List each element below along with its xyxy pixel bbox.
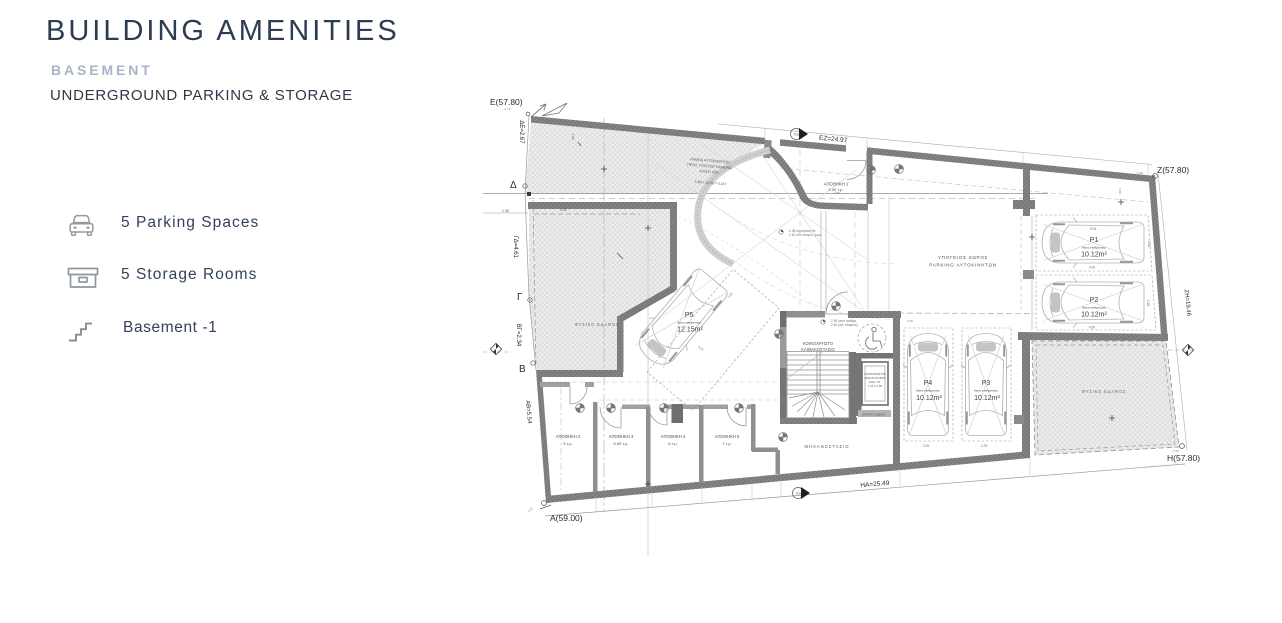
svg-text:θεση σταθμευσης: θεση σταθμευσης bbox=[916, 389, 940, 393]
svg-text:ΚΛΙΜΑΚΟΣΤΑΣΙΟ: ΚΛΙΜΑΚΟΣΤΑΣΙΟ bbox=[801, 347, 835, 352]
svg-text:θεση σταθμευσης: θεση σταθμευσης bbox=[974, 389, 998, 393]
svg-text:ΤΟΜ: ΤΟΜ bbox=[794, 133, 801, 137]
svg-text:10.12m²: 10.12m² bbox=[1081, 312, 1107, 319]
svg-text:P3: P3 bbox=[982, 380, 991, 387]
svg-text:P1: P1 bbox=[1090, 237, 1099, 244]
svg-text:ΚΑΘ. ΥΨ.: ΚΑΘ. ΥΨ. bbox=[869, 380, 881, 384]
svg-text:4.50: 4.50 bbox=[1089, 326, 1096, 330]
svg-text:2.25: 2.25 bbox=[923, 444, 930, 448]
svg-text:12.15m²: 12.15m² bbox=[677, 327, 703, 334]
svg-text:10.12m²: 10.12m² bbox=[916, 395, 942, 402]
svg-text:6.50 τ.μ.: 6.50 τ.μ. bbox=[613, 441, 628, 446]
svg-text:ΕΖ=24.97: ΕΖ=24.97 bbox=[819, 135, 848, 145]
svg-text:2.25: 2.25 bbox=[981, 444, 988, 448]
svg-text:Z(57.80): Z(57.80) bbox=[1157, 165, 1189, 175]
svg-text:ΥΠΟΓΕΙΟΣ ΧΩΡΟΣ: ΥΠΟΓΕΙΟΣ ΧΩΡΟΣ bbox=[938, 255, 988, 260]
svg-text:-2.60 γειτ. εδαφους): -2.60 γειτ. εδαφους) bbox=[830, 323, 858, 327]
svg-text:-1.70: -1.70 bbox=[504, 107, 511, 111]
svg-text:ΚΟΙΝΟΧΡΗΣΤΟΣ: ΚΟΙΝΟΧΡΗΣΤΟΣ bbox=[864, 372, 885, 376]
svg-text:E(57.80): E(57.80) bbox=[490, 97, 523, 107]
svg-text:5.05: 5.05 bbox=[1090, 227, 1097, 231]
svg-text:3.00: 3.00 bbox=[560, 208, 567, 212]
svg-text:ΑΠΟΘΗΚΗ 3: ΑΠΟΘΗΚΗ 3 bbox=[609, 434, 634, 439]
svg-text:ΜΗΧΑΝΟΣΤΑΣΙΟ: ΜΗΧΑΝΟΣΤΑΣΙΟ bbox=[804, 444, 849, 449]
svg-text:2.15: 2.15 bbox=[907, 319, 913, 323]
svg-text:10.12m²: 10.12m² bbox=[1081, 252, 1107, 259]
svg-text:4.50: 4.50 bbox=[1089, 266, 1096, 270]
svg-text:ΑΠΟΘΗΚΗ 1: ΑΠΟΘΗΚΗ 1 bbox=[824, 182, 849, 187]
svg-text:7 τ.μ.: 7 τ.μ. bbox=[722, 441, 731, 446]
svg-text:ΦΥΣΙΚΟ ΕΔΑΦΟΣ: ΦΥΣΙΚΟ ΕΔΑΦΟΣ bbox=[1082, 389, 1127, 394]
svg-text:ΦΡΕΑΤΙΟ ΛΕΒΗΤΑ: ΦΡΕΑΤΙΟ ΛΕΒΗΤΑ bbox=[863, 413, 886, 417]
svg-text:5.28: 5.28 bbox=[697, 345, 704, 352]
svg-text:H(57.80): H(57.80) bbox=[1167, 453, 1200, 463]
svg-text:ΑΝΕΛΚΥΣΤΗΡΑΣ: ΑΝΕΛΚΥΣΤΗΡΑΣ bbox=[864, 376, 886, 380]
svg-text:ΚΟΙΝΟΧΡΗΣΤΟ: ΚΟΙΝΟΧΡΗΣΤΟ bbox=[803, 341, 834, 346]
svg-text:6 τ.μ.: 6 τ.μ. bbox=[668, 441, 677, 446]
svg-text:-2.62 στο υπογειο χωρο: -2.62 στο υπογειο χωρο bbox=[788, 233, 822, 237]
svg-text:2.28: 2.28 bbox=[1147, 241, 1151, 248]
svg-text:1.35: 1.35 bbox=[1137, 171, 1143, 175]
svg-text:1.50: 1.50 bbox=[834, 191, 840, 195]
svg-text:P2: P2 bbox=[1090, 297, 1099, 304]
svg-text:θεση σταθμευσης: θεση σταθμευσης bbox=[1082, 246, 1106, 250]
svg-text:P5: P5 bbox=[685, 312, 694, 319]
svg-text:1.50: 1.50 bbox=[1118, 188, 1122, 194]
svg-text:-1.50: -1.50 bbox=[1172, 449, 1179, 453]
svg-text:2.28: 2.28 bbox=[1146, 300, 1150, 307]
svg-text:ΤΟΜ: ΤΟΜ bbox=[796, 492, 803, 496]
svg-text:2.30: 2.30 bbox=[727, 292, 734, 299]
svg-text:ΗΑ=25.49: ΗΑ=25.49 bbox=[860, 480, 890, 489]
svg-text:-1.20: -1.20 bbox=[526, 506, 534, 513]
svg-text:ΑΠΟΘΗΚΗ 5: ΑΠΟΘΗΚΗ 5 bbox=[715, 434, 740, 439]
svg-text:ΓΔ=4.61: ΓΔ=4.61 bbox=[512, 236, 518, 259]
svg-text:ΖΗ=19.46: ΖΗ=19.46 bbox=[1183, 289, 1192, 317]
svg-text:PARKING ΑΥΤΟΚΙΝΗΤΩΝ: PARKING ΑΥΤΟΚΙΝΗΤΩΝ bbox=[929, 263, 996, 268]
svg-text:B: B bbox=[519, 364, 526, 375]
svg-text:P4: P4 bbox=[924, 380, 933, 387]
svg-text:1.38: 1.38 bbox=[502, 209, 509, 213]
svg-text:1.00: 1.00 bbox=[571, 134, 575, 140]
svg-text:1.21 Χ 1.00: 1.21 Χ 1.00 bbox=[868, 384, 882, 388]
svg-text:ΑΠΟΘΗΚΗ 2: ΑΠΟΘΗΚΗ 2 bbox=[556, 434, 581, 439]
svg-text:Γ: Γ bbox=[517, 292, 523, 303]
svg-text:ΒΓ=2.34: ΒΓ=2.34 bbox=[515, 324, 521, 347]
svg-text:ΑΠΟΘΗΚΗ 4: ΑΠΟΘΗΚΗ 4 bbox=[661, 434, 686, 439]
svg-text:θεση σταθμευσης: θεση σταθμευσης bbox=[1082, 306, 1106, 310]
svg-text:ΔΕ=2.67: ΔΕ=2.67 bbox=[518, 120, 524, 144]
svg-text:Δ: Δ bbox=[510, 180, 517, 191]
svg-text:ΑΒ=5.54: ΑΒ=5.54 bbox=[524, 400, 532, 424]
svg-text:A(59.00): A(59.00) bbox=[550, 513, 583, 523]
svg-text:ΦΥΣΙΚΟ ΕΔΑΦΟΣ: ΦΥΣΙΚΟ ΕΔΑΦΟΣ bbox=[575, 322, 620, 327]
svg-text:10.12m²: 10.12m² bbox=[974, 395, 1000, 402]
svg-text:θεση σταθμευσης: θεση σταθμευσης bbox=[677, 321, 701, 325]
svg-text:9 τ.μ.: 9 τ.μ. bbox=[563, 441, 572, 446]
